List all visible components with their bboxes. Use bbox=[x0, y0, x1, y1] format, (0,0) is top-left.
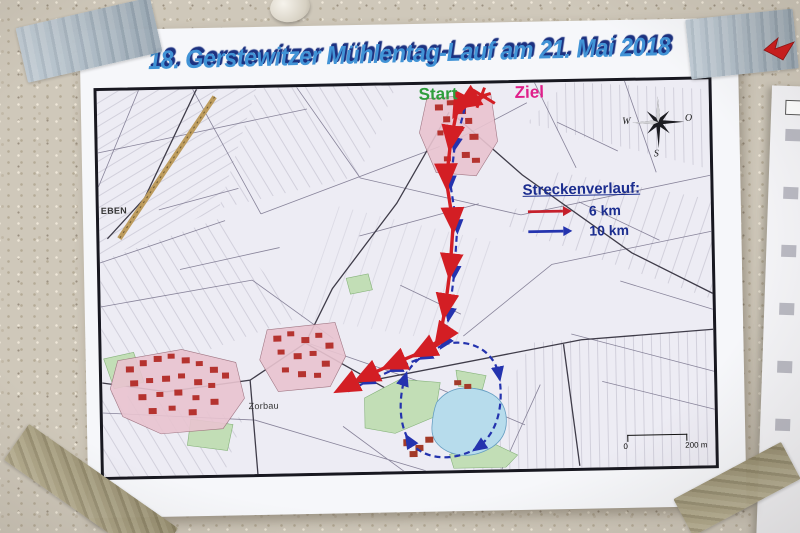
event-title-text: 18. Gerstewitzer Mühlentag-Lauf am 21. M… bbox=[147, 31, 670, 76]
neighbor-sheet-thumbnail bbox=[779, 303, 794, 316]
compass-west-label: W bbox=[622, 117, 631, 127]
neighbor-sheet-thumbnail bbox=[785, 129, 800, 142]
ziel-label: Ziel bbox=[514, 83, 544, 101]
photo-of-notice-wall: 18. Gerstewitzer Mühlentag-Lauf am 21. M… bbox=[0, 0, 800, 533]
white-pin-blob bbox=[268, 0, 313, 25]
red-arrow-icon bbox=[527, 205, 573, 218]
compass-rose-icon: W O S bbox=[625, 90, 692, 157]
legend-6km-label: 6 km bbox=[589, 203, 621, 218]
map-area: Start Ziel Streckenverlauf: 6 km 10 km bbox=[93, 76, 718, 480]
legend-10km-label: 10 km bbox=[589, 223, 629, 238]
neighbor-sheet-thumbnail bbox=[775, 419, 790, 432]
legend-item-6km: 6 km bbox=[527, 202, 693, 219]
route-legend: Streckenverlauf: 6 km 10 km bbox=[522, 180, 693, 239]
topographic-map-graphic bbox=[97, 79, 716, 477]
map-poster-sheet: 18. Gerstewitzer Mühlentag-Lauf am 21. M… bbox=[79, 18, 746, 519]
place-label-zorbau: Zorbau bbox=[249, 402, 279, 412]
legend-title: Streckenverlauf: bbox=[522, 180, 692, 198]
start-label: Start bbox=[419, 85, 458, 103]
place-label-eben: EBEN bbox=[101, 206, 127, 216]
red-pin-icon bbox=[762, 34, 798, 64]
neighbor-sheet-box bbox=[785, 100, 800, 116]
compass-south-label: S bbox=[654, 149, 659, 159]
neighbor-sheet-thumbnail bbox=[781, 245, 796, 258]
neighbor-sheet-thumbnail bbox=[777, 361, 792, 374]
page-title: 18. Gerstewitzer Mühlentag-Lauf am 21. M… bbox=[80, 32, 738, 76]
scale-bar: 0 200 m bbox=[623, 433, 713, 451]
scale-distance-label: 200 m bbox=[685, 441, 707, 449]
compass-east-label: O bbox=[685, 114, 692, 124]
scale-bar-line bbox=[627, 434, 687, 442]
neighbor-sheet-thumbnail bbox=[783, 187, 798, 200]
scale-zero-label: 0 bbox=[623, 443, 628, 451]
compass-star bbox=[630, 94, 687, 151]
blue-arrow-icon bbox=[527, 225, 573, 238]
